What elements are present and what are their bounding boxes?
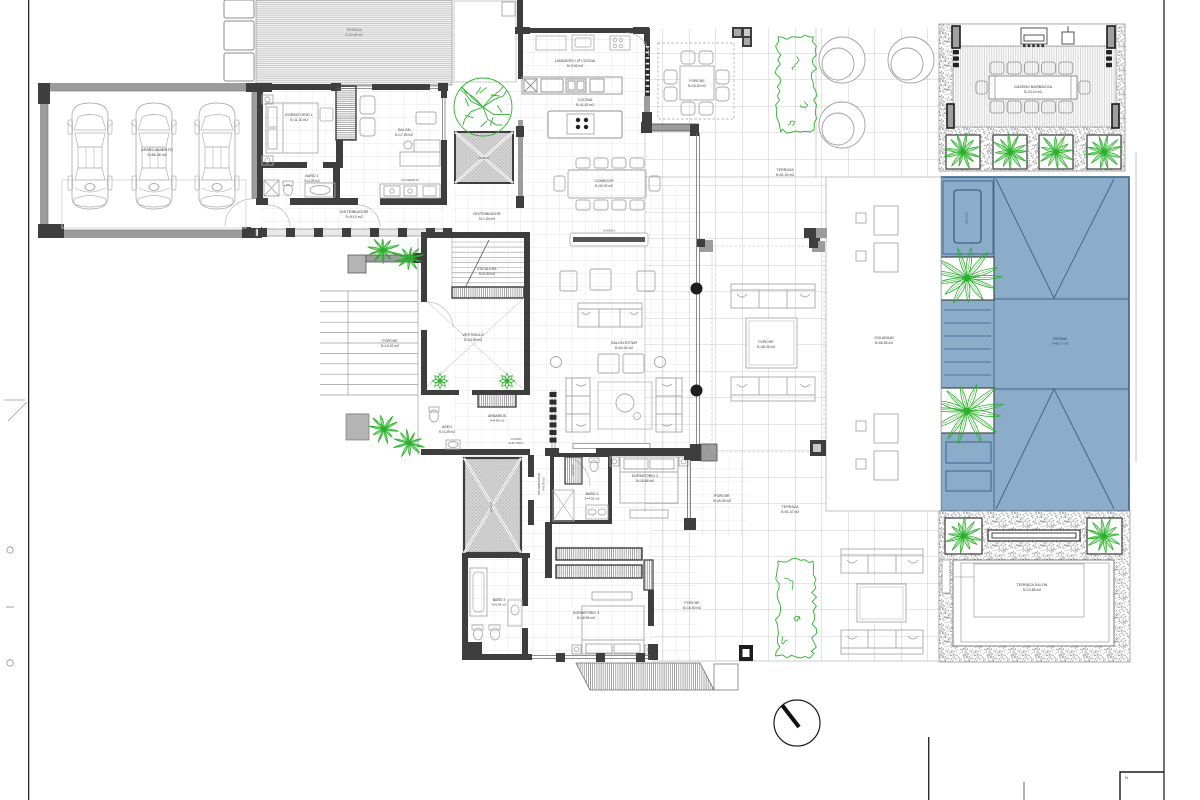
svg-text:S=45.25 m2: S=45.25 m2: [757, 345, 775, 349]
svg-text:S=24.85 m2: S=24.85 m2: [1023, 588, 1041, 592]
svg-text:ESCALERA: ESCALERA: [477, 267, 497, 271]
svg-text:S=18.95 m2: S=18.95 m2: [577, 616, 595, 620]
svg-text:VESTIDOR: VESTIDOR: [573, 464, 575, 476]
svg-text:PISCINA: PISCINA: [1053, 337, 1067, 341]
svg-text:SALON ESTAR: SALON ESTAR: [611, 341, 638, 345]
svg-text:S=4.25 m2: S=4.25 m2: [304, 179, 320, 183]
svg-text:ELECTRICO: ELECTRICO: [509, 441, 524, 445]
svg-text:SOLARIUM: SOLARIUM: [874, 336, 893, 340]
svg-text:PORCHE: PORCHE: [689, 79, 705, 83]
svg-text:S=10.20 m2: S=10.20 m2: [381, 344, 399, 348]
svg-text:COMEDOR: COMEDOR: [594, 179, 614, 183]
svg-text:S=49.35 m2: S=49.35 m2: [713, 499, 731, 503]
svg-text:N: N: [1125, 775, 1128, 780]
svg-text:S=5.56 m2: S=5.56 m2: [491, 603, 506, 607]
svg-text:S=11.42 m2: S=11.42 m2: [576, 103, 594, 107]
svg-text:S=4.95 m2: S=4.95 m2: [489, 419, 504, 423]
svg-text:S=17.55 m2: S=17.55 m2: [395, 133, 413, 137]
svg-text:S=66.55 m2: S=66.55 m2: [875, 341, 893, 345]
svg-text:S=95.17 m2: S=95.17 m2: [1052, 342, 1069, 346]
svg-text:S=4.29 m2: S=4.29 m2: [439, 430, 456, 434]
svg-text:COCINA: COCINA: [578, 98, 593, 102]
svg-text:S=9.13 m2: S=9.13 m2: [345, 215, 362, 219]
svg-text:S=14.89 m2: S=14.89 m2: [464, 338, 482, 342]
svg-text:S=23.10 m2: S=23.10 m2: [1024, 90, 1042, 94]
svg-text:S=4.56 m2: S=4.56 m2: [584, 497, 599, 501]
svg-text:DISTRIBUIDOR: DISTRIBUIDOR: [473, 212, 500, 216]
svg-text:BAÑO 1: BAÑO 1: [305, 173, 318, 178]
svg-text:CHIMENEA: CHIMENEA: [603, 230, 616, 233]
svg-text:S=9.62 m2: S=9.62 m2: [567, 64, 584, 68]
svg-text:S=51.67 m2: S=51.67 m2: [781, 510, 799, 514]
svg-text:PORCHE: PORCHE: [714, 494, 730, 498]
svg-text:S=5.05 m2: S=5.05 m2: [541, 477, 545, 491]
svg-text:SALON: SALON: [398, 128, 411, 132]
svg-text:HUECO: HUECO: [489, 501, 493, 512]
svg-text:S=6.30 m2: S=6.30 m2: [479, 272, 496, 276]
svg-text:TERRAZA SALON: TERRAZA SALON: [1017, 583, 1048, 587]
svg-text:TERRAZA: TERRAZA: [776, 168, 794, 172]
svg-text:TERRAZA: TERRAZA: [781, 505, 799, 509]
svg-text:PORCHE: PORCHE: [684, 601, 700, 605]
svg-text:BAÑO 2: BAÑO 2: [586, 491, 599, 496]
svg-text:TERRAZA: TERRAZA: [346, 28, 363, 32]
svg-text:S=16.50 m2: S=16.50 m2: [683, 606, 701, 610]
svg-text:PORCHE: PORCHE: [382, 339, 398, 343]
svg-text:S=16.00 m2: S=16.00 m2: [688, 84, 706, 88]
svg-text:DISTRIBUIDOR: DISTRIBUIDOR: [537, 472, 541, 494]
svg-text:GAZEBO BARBACOA: GAZEBO BARBACOA: [1014, 85, 1052, 89]
svg-text:HUECO: HUECO: [479, 156, 490, 160]
svg-text:VESTIBULO: VESTIBULO: [462, 333, 483, 337]
svg-text:LAVADERO / 2ª COCINA: LAVADERO / 2ª COCINA: [555, 59, 596, 63]
svg-text:JACUZZI: JACUZZI: [965, 212, 969, 224]
svg-text:DORMITORIO 1: DORMITORIO 1: [285, 113, 313, 117]
svg-text:ARMARIOS: ARMARIOS: [488, 414, 507, 418]
svg-text:CUADRO: CUADRO: [510, 437, 521, 441]
svg-text:PORCHE: PORCHE: [758, 340, 774, 344]
svg-text:DORMITORIO 3: DORMITORIO 3: [573, 611, 599, 615]
svg-text:S=64.41 m2: S=64.41 m2: [615, 346, 633, 350]
svg-text:S=1.54 m2: S=1.54 m2: [479, 217, 496, 221]
svg-text:ASEO: ASEO: [442, 425, 452, 429]
svg-text:DORMITORIO 2: DORMITORIO 2: [632, 474, 658, 478]
svg-text:S=51.30 m2: S=51.30 m2: [776, 173, 794, 177]
svg-text:S=18.86 m2: S=18.86 m2: [636, 479, 654, 483]
svg-text:S=66.46 m2: S=66.46 m2: [147, 153, 166, 157]
svg-text:S=30.00 m2: S=30.00 m2: [595, 184, 613, 188]
svg-text:S=11.30 m2: S=11.30 m2: [290, 118, 308, 122]
svg-text:KITCHENETTE: KITCHENETTE: [401, 178, 419, 182]
svg-text:DISTRIBUIDOR: DISTRIBUIDOR: [340, 209, 369, 214]
svg-text:APARCAMIENTO: APARCAMIENTO: [141, 147, 173, 152]
svg-text:S=32.65 m2: S=32.65 m2: [345, 33, 363, 37]
svg-text:BAÑO 3: BAÑO 3: [493, 597, 506, 602]
